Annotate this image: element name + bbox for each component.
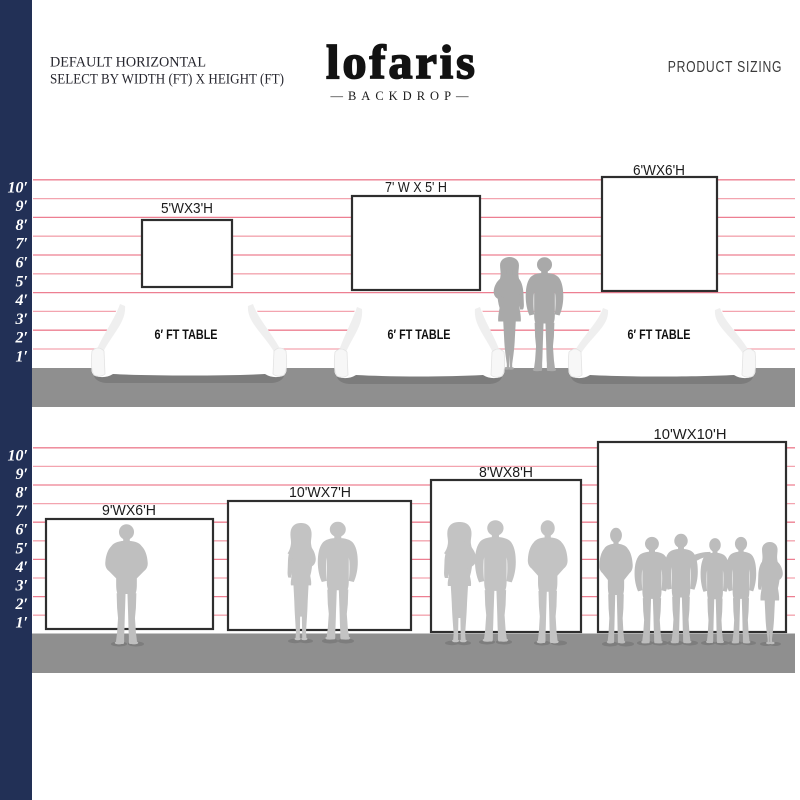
svg-text:1′: 1′ (16, 615, 29, 632)
svg-text:7′: 7′ (16, 503, 29, 520)
svg-text:5'WX3'H: 5'WX3'H (161, 200, 213, 217)
svg-text:9′: 9′ (16, 466, 29, 483)
svg-text:6′ FT TABLE: 6′ FT TABLE (628, 326, 691, 342)
svg-text:6'WX6'H: 6'WX6'H (633, 162, 685, 179)
svg-text:6′ FT TABLE: 6′ FT TABLE (155, 326, 218, 342)
svg-text:4′: 4′ (15, 559, 29, 576)
svg-text:4′: 4′ (15, 292, 29, 309)
svg-text:10'WX10'H: 10'WX10'H (654, 426, 727, 443)
svg-text:3′: 3′ (15, 578, 29, 595)
svg-text:2′: 2′ (15, 330, 29, 347)
svg-text:5′: 5′ (16, 273, 29, 290)
svg-text:6′: 6′ (16, 522, 29, 539)
svg-text:10′: 10′ (8, 179, 29, 196)
svg-text:DEFAULT HORIZONTAL: DEFAULT HORIZONTAL (50, 55, 206, 71)
svg-text:2′: 2′ (15, 596, 29, 613)
svg-text:8′: 8′ (16, 485, 29, 502)
svg-text:9'WX6'H: 9'WX6'H (102, 502, 156, 519)
svg-text:9′: 9′ (16, 198, 29, 215)
svg-text:8'WX8'H: 8'WX8'H (479, 464, 533, 481)
svg-text:8′: 8′ (16, 217, 29, 234)
svg-text:7′: 7′ (16, 236, 29, 253)
svg-text:10'WX7'H: 10'WX7'H (289, 484, 351, 501)
svg-text:3′: 3′ (15, 311, 29, 328)
svg-text:6′: 6′ (16, 255, 29, 272)
svg-text:10′: 10′ (8, 447, 29, 464)
svg-text:1′: 1′ (16, 349, 29, 366)
svg-text:SELECT BY WIDTH (FT) X HEIGHT: SELECT BY WIDTH (FT) X HEIGHT (FT) (50, 72, 284, 88)
svg-text:5′: 5′ (16, 540, 29, 557)
svg-text:6′ FT TABLE: 6′ FT TABLE (388, 326, 451, 342)
svg-text:7' W X 5' H: 7' W X 5' H (385, 179, 447, 196)
